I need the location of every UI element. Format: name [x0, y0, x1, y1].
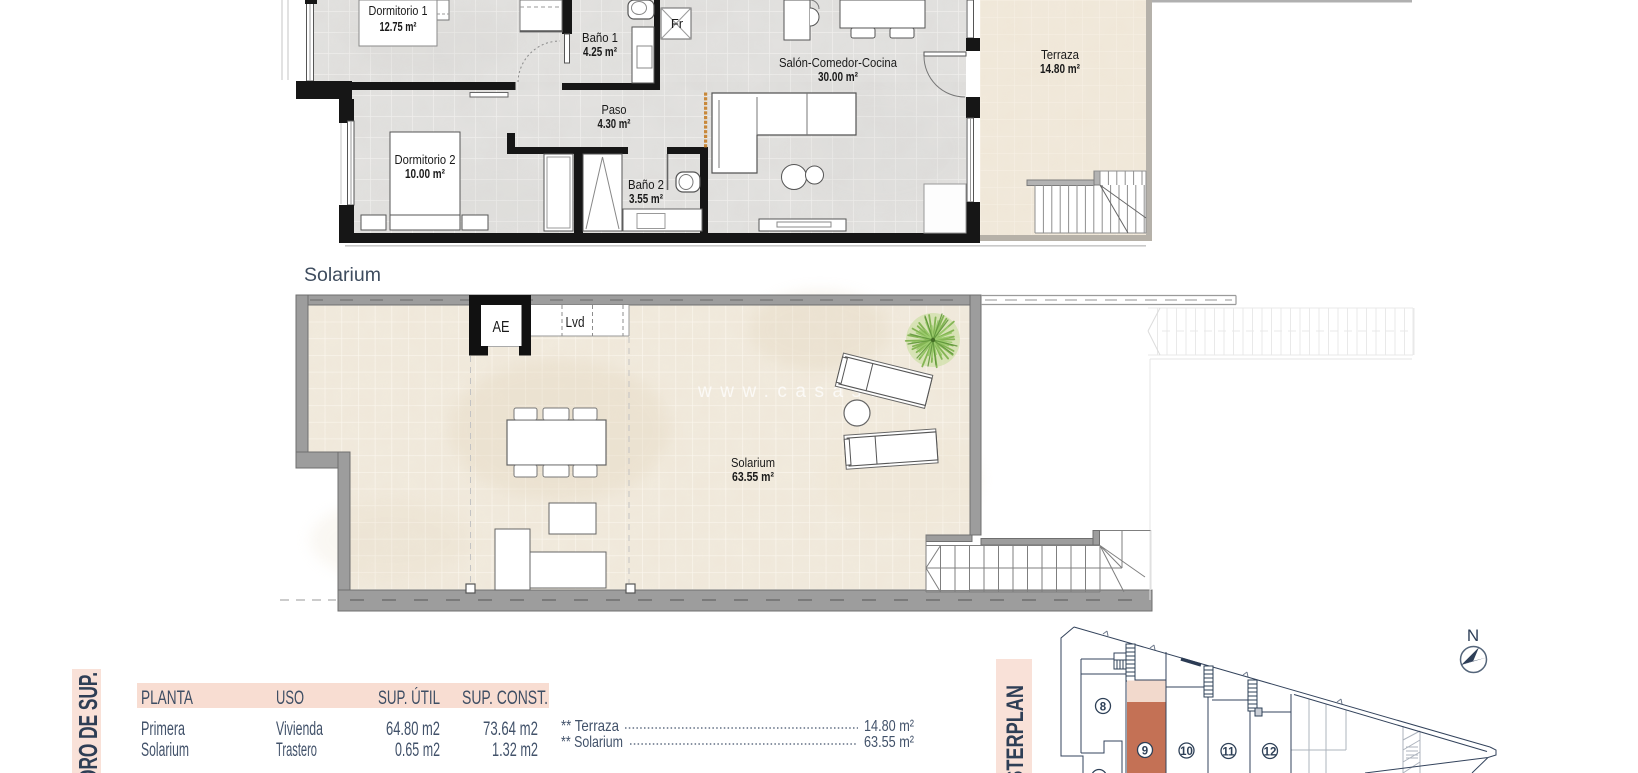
svg-text:Lvd: Lvd	[566, 314, 585, 331]
svg-text:Solarium: Solarium	[141, 740, 189, 761]
svg-text:9: 9	[1142, 746, 1148, 758]
svg-text:10.00 m²: 10.00 m²	[405, 167, 445, 181]
svg-text:4.25 m²: 4.25 m²	[583, 45, 617, 59]
svg-text:73.64 m2: 73.64 m2	[483, 719, 538, 740]
svg-text:Baño 1: Baño 1	[582, 31, 618, 45]
svg-text:64.80 m2: 64.80 m2	[386, 719, 440, 740]
svg-text:1.32 m2: 1.32 m2	[492, 740, 538, 761]
svg-text:0.65 m2: 0.65 m2	[395, 740, 440, 761]
svg-text:** Terraza: ** Terraza	[561, 718, 619, 735]
svg-text:Dormitorio 2: Dormitorio 2	[395, 153, 456, 167]
svg-text:Solarium: Solarium	[304, 264, 381, 286]
svg-text:Baño 2: Baño 2	[628, 178, 664, 192]
svg-text:30.00 m²: 30.00 m²	[818, 70, 858, 84]
svg-text:12.75 m²: 12.75 m²	[380, 20, 417, 34]
svg-text:8: 8	[1100, 702, 1107, 714]
svg-text:DRO DE SUP.: DRO DE SUP.	[73, 672, 103, 773]
svg-text:Trastero: Trastero	[276, 740, 317, 761]
svg-text:Solarium: Solarium	[731, 456, 775, 470]
svg-text:Salón-Comedor-Cocina: Salón-Comedor-Cocina	[779, 55, 898, 70]
svg-text:14.80 m²: 14.80 m²	[1040, 62, 1080, 76]
svg-text:Primera: Primera	[141, 719, 185, 740]
svg-text:3.55 m²: 3.55 m²	[629, 192, 663, 206]
svg-text:** Solarium: ** Solarium	[561, 734, 623, 751]
svg-text:11: 11	[1222, 747, 1235, 759]
svg-text:AE: AE	[493, 319, 510, 336]
svg-text:PLANTA: PLANTA	[141, 688, 193, 709]
svg-text:10: 10	[1180, 746, 1193, 758]
svg-text:SUP. CONST.: SUP. CONST.	[462, 688, 548, 709]
svg-text:63.55 m²: 63.55 m²	[864, 734, 915, 751]
svg-text:4.30 m²: 4.30 m²	[598, 117, 631, 131]
svg-text:Paso: Paso	[602, 103, 627, 117]
svg-text:14.80 m²: 14.80 m²	[864, 718, 915, 735]
svg-text:MASTERPLAN: MASTERPLAN	[1002, 685, 1029, 773]
svg-text:12: 12	[1264, 747, 1277, 759]
svg-text:SUP. ÚTIL: SUP. ÚTIL	[378, 687, 440, 709]
svg-text:63.55 m²: 63.55 m²	[732, 470, 774, 484]
svg-text:N: N	[1467, 626, 1479, 645]
svg-text:Fr: Fr	[671, 16, 684, 31]
svg-text:Vivienda: Vivienda	[276, 719, 323, 740]
svg-text:Terraza: Terraza	[1041, 48, 1079, 62]
svg-text:Dormitorio 1: Dormitorio 1	[369, 4, 428, 18]
svg-text:USO: USO	[276, 688, 304, 709]
